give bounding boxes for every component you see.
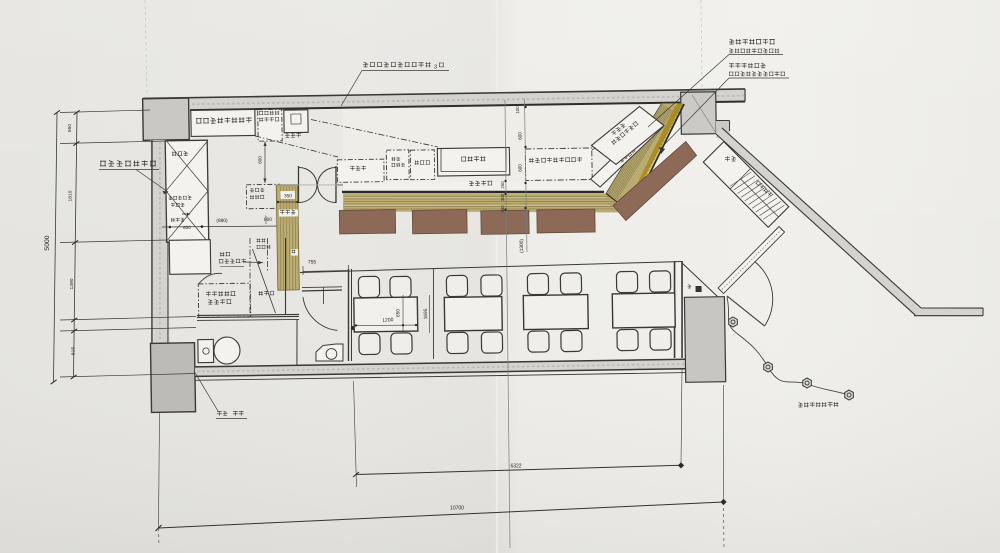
svg-text:755: 755 (308, 259, 317, 265)
svg-text:600: 600 (257, 156, 262, 164)
svg-text:350: 350 (500, 205, 505, 213)
svg-text:250: 250 (500, 181, 505, 189)
svg-text:650: 650 (395, 309, 401, 317)
svg-text:550: 550 (67, 124, 73, 132)
svg-text:5000: 5000 (44, 235, 51, 250)
svg-text:600: 600 (517, 132, 522, 140)
svg-text:1200: 1200 (382, 317, 394, 324)
svg-text:815: 815 (71, 347, 77, 355)
svg-text:(880): (880) (216, 218, 228, 224)
svg-text:1695: 1695 (423, 308, 429, 319)
svg-text:6322: 6322 (510, 464, 521, 470)
svg-text:600: 600 (183, 225, 191, 230)
svg-text:600: 600 (264, 217, 272, 223)
svg-text:600: 600 (517, 164, 522, 172)
svg-text:350: 350 (284, 193, 292, 199)
svg-text:300: 300 (500, 193, 505, 201)
svg-text:(1300): (1300) (519, 239, 525, 253)
svg-text:1810: 1810 (68, 190, 74, 201)
svg-text:10700: 10700 (450, 506, 464, 512)
svg-text:1390: 1390 (69, 278, 75, 289)
svg-text:3: 3 (434, 65, 437, 71)
svg-text:100: 100 (515, 106, 520, 114)
